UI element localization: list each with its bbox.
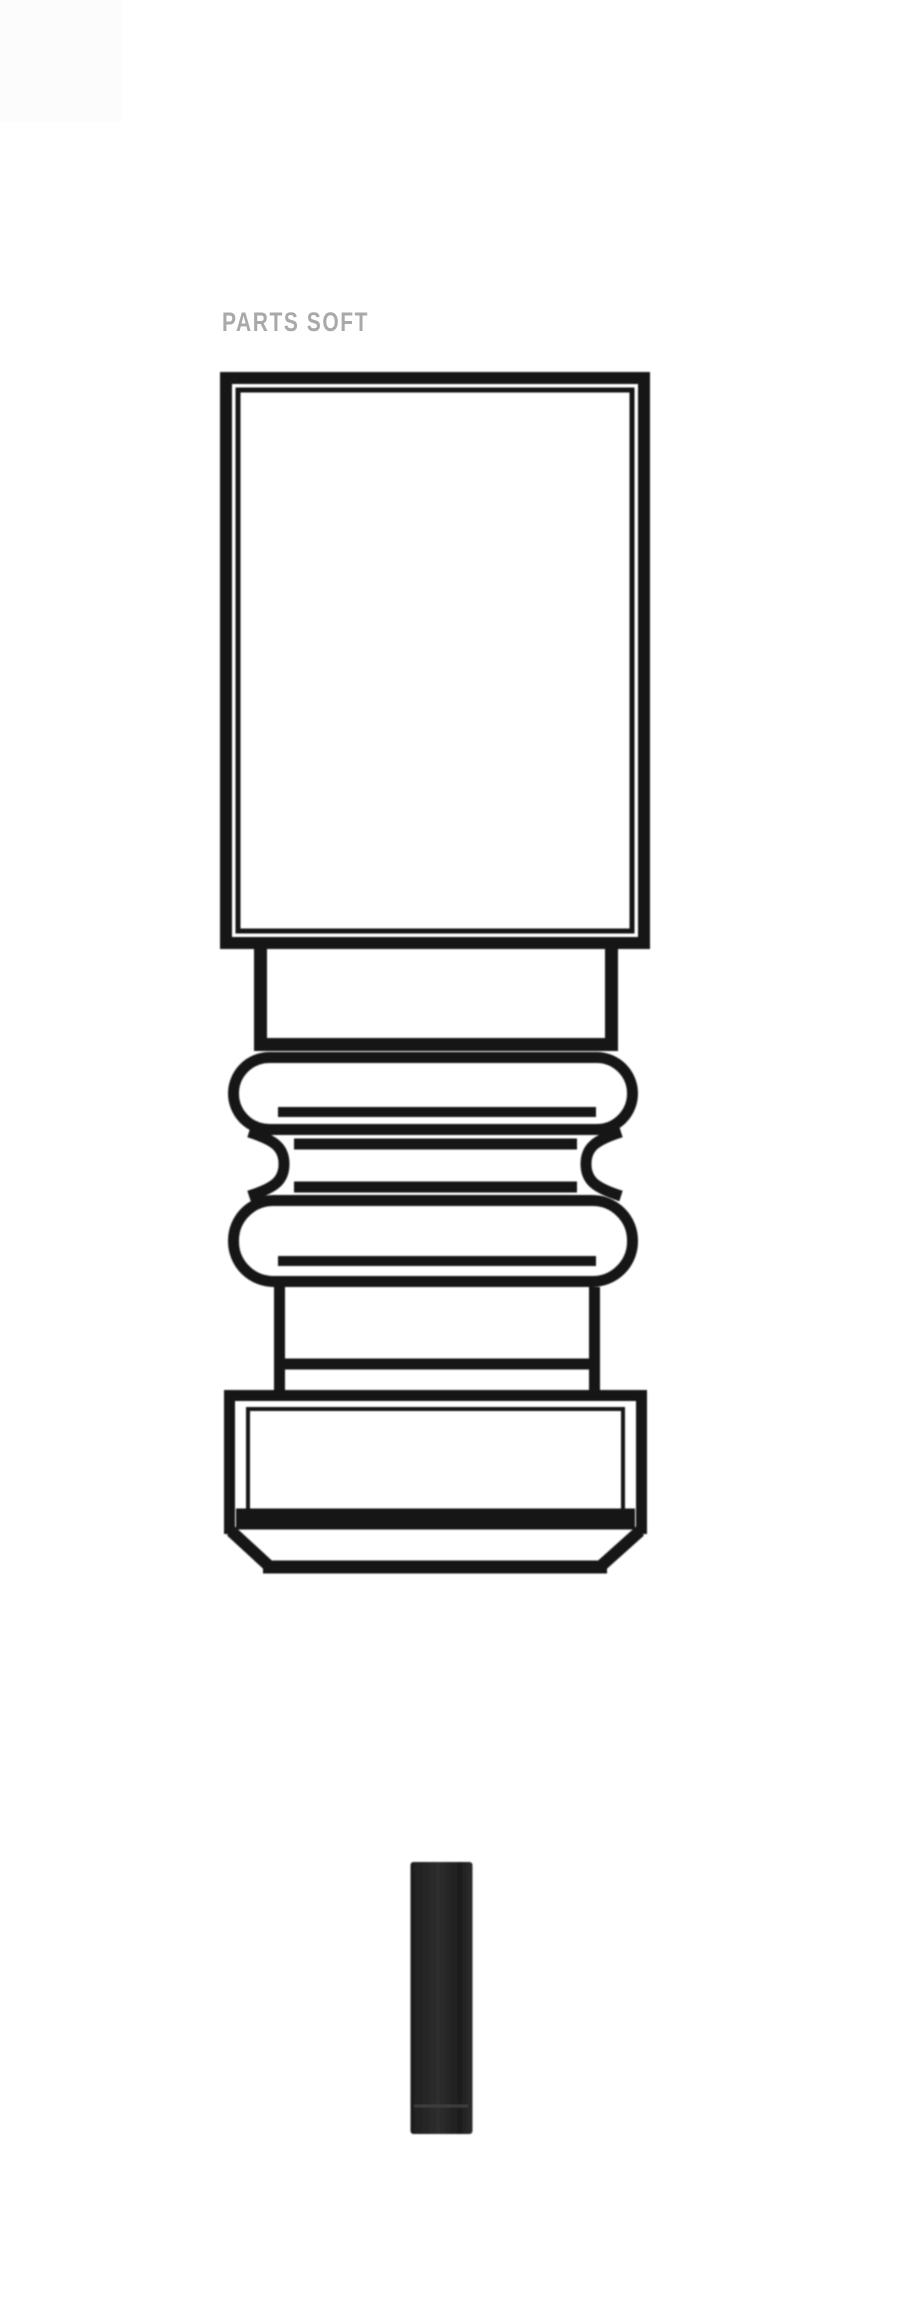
valve-outline <box>224 378 647 1567</box>
valve-stem-end-piece <box>411 1862 473 2134</box>
valve-technical-drawing: PARTS SOFT <box>0 0 900 2318</box>
seal-neck-right-curve <box>586 1132 621 1196</box>
catalog-product-image: PARTS SOFT <box>0 0 900 2318</box>
stem-end-body <box>411 1862 473 2134</box>
watermark-text: PARTS SOFT <box>222 307 369 337</box>
photo-placeholder-square <box>0 0 122 122</box>
seal-neck-left-curve <box>249 1132 284 1196</box>
